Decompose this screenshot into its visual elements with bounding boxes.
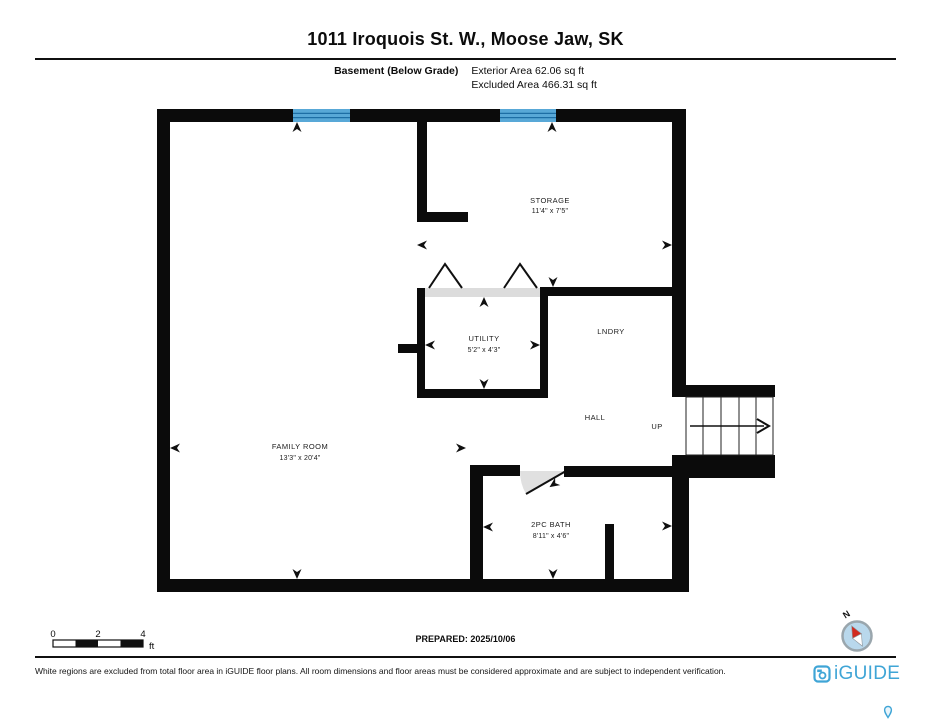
compass-north-label: N <box>841 608 852 620</box>
camera-icon <box>813 665 831 683</box>
room-label-utility: UTILITY <box>468 334 499 343</box>
room-label-bath: 2PC BATH <box>531 520 571 529</box>
room-dims-utility: 5'2" x 4'3" <box>468 347 501 354</box>
window-icon <box>500 109 556 122</box>
iguide-logo: iGUIDE <box>813 663 900 685</box>
stairs-up-label: UP <box>651 422 662 431</box>
walls <box>157 109 775 592</box>
room-dims-storage: 11'4" x 7'5" <box>532 208 569 215</box>
location-pin-icon <box>881 701 895 719</box>
bath-door-icon <box>520 466 574 494</box>
footer-disclaimer: White regions are excluded from total fl… <box>35 666 815 676</box>
room-label-laundry: LNDRY <box>597 327 625 336</box>
staircase <box>686 397 773 455</box>
room-label-family-room: FAMILY ROOM <box>272 442 328 451</box>
room-dims-family-room: 13'3" x 20'4" <box>280 455 321 462</box>
footer-divider <box>35 656 896 658</box>
brand-text: iGUIDE <box>834 663 900 685</box>
prepared-date: PREPARED: 2025/10/06 <box>0 634 931 644</box>
compass-icon: N <box>841 608 871 650</box>
window-icon <box>293 109 350 122</box>
room-label-hall: HALL <box>585 413 606 422</box>
room-dims-bath: 8'11" x 4'6" <box>533 533 570 540</box>
utility-door-icon <box>425 264 540 297</box>
floor-plan: STORAGE 11'4" x 7'5" UTILITY 5'2" x 4'3"… <box>0 0 931 720</box>
room-label-storage: STORAGE <box>530 196 570 205</box>
